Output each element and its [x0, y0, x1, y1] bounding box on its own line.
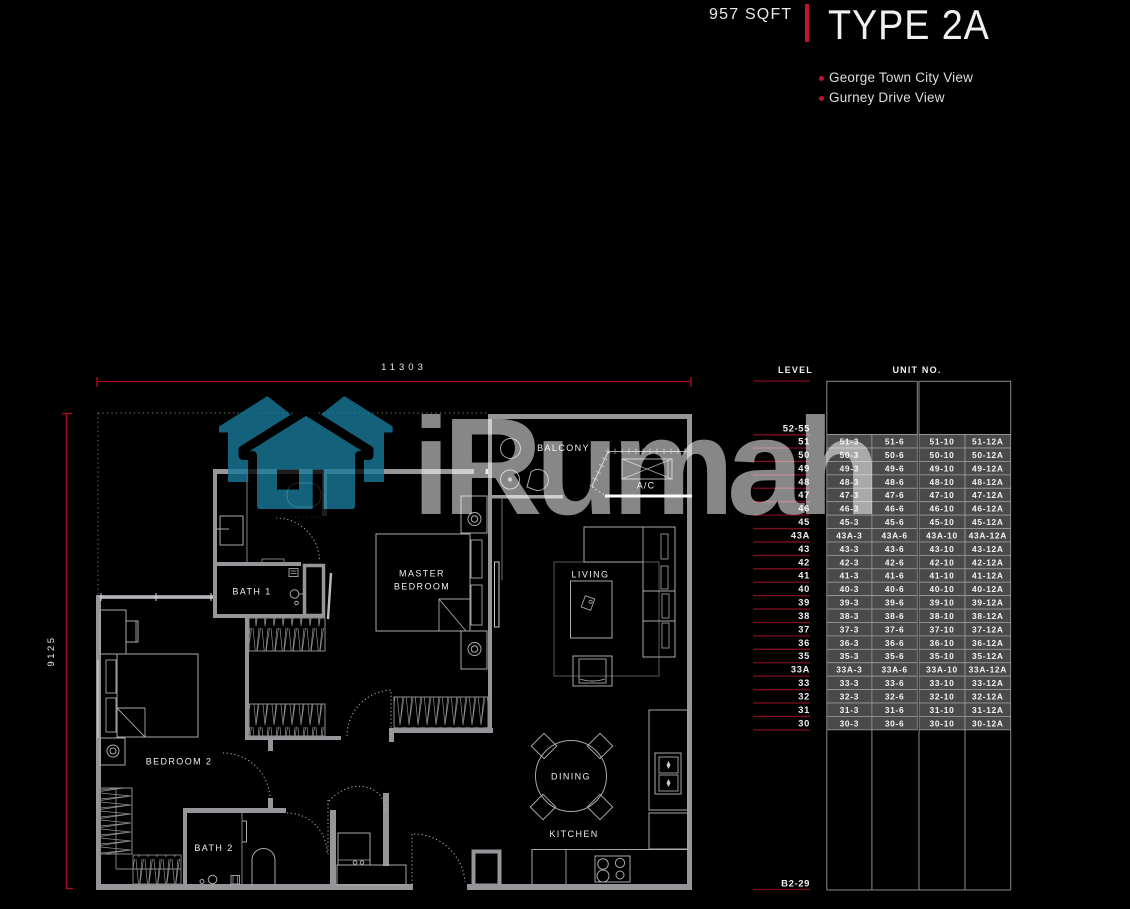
- svg-text:BATH 1: BATH 1: [232, 587, 271, 597]
- svg-text:40-3: 40-3: [840, 584, 860, 594]
- svg-text:iRumah: iRumah: [412, 390, 873, 544]
- svg-text:43A-10: 43A-10: [926, 530, 958, 540]
- svg-text:41: 41: [798, 571, 810, 581]
- svg-text:11303: 11303: [381, 362, 427, 373]
- svg-text:31-6: 31-6: [885, 705, 905, 715]
- svg-text:35: 35: [798, 651, 810, 661]
- svg-text:31-3: 31-3: [840, 705, 860, 715]
- svg-text:42-10: 42-10: [930, 557, 955, 567]
- svg-text:37-12A: 37-12A: [972, 624, 1004, 634]
- svg-text:50-12A: 50-12A: [972, 450, 1004, 460]
- svg-text:UNIT NO.: UNIT NO.: [892, 365, 941, 375]
- svg-text:43-3: 43-3: [840, 544, 860, 554]
- svg-text:43: 43: [798, 544, 810, 554]
- svg-text:50-10: 50-10: [930, 450, 955, 460]
- svg-text:45-6: 45-6: [885, 517, 905, 527]
- svg-text:30: 30: [798, 718, 810, 728]
- svg-text:33-6: 33-6: [885, 678, 905, 688]
- svg-text:43A-12A: 43A-12A: [969, 530, 1007, 540]
- svg-text:30-3: 30-3: [840, 718, 860, 728]
- svg-text:51-6: 51-6: [885, 437, 905, 447]
- svg-text:40: 40: [798, 584, 810, 594]
- svg-text:30-10: 30-10: [930, 718, 955, 728]
- svg-text:36-10: 36-10: [930, 638, 955, 648]
- svg-text:36-6: 36-6: [885, 638, 905, 648]
- svg-text:35-10: 35-10: [930, 651, 955, 661]
- svg-text:40-10: 40-10: [930, 584, 955, 594]
- svg-text:30-12A: 30-12A: [972, 718, 1004, 728]
- svg-text:39-6: 39-6: [885, 598, 905, 608]
- svg-text:49-10: 49-10: [930, 463, 955, 473]
- svg-text:MASTER: MASTER: [399, 569, 445, 579]
- svg-text:B2-29: B2-29: [781, 879, 810, 890]
- svg-text:31-12A: 31-12A: [972, 705, 1004, 715]
- svg-text:33A-12A: 33A-12A: [969, 665, 1007, 675]
- svg-text:38-10: 38-10: [930, 611, 955, 621]
- svg-text:46-6: 46-6: [885, 504, 905, 514]
- svg-text:BATH 2: BATH 2: [194, 843, 233, 853]
- svg-text:39-12A: 39-12A: [972, 598, 1004, 608]
- svg-text:33A-3: 33A-3: [836, 665, 862, 675]
- svg-text:38: 38: [798, 611, 810, 621]
- svg-text:46-12A: 46-12A: [972, 504, 1004, 514]
- svg-text:31: 31: [798, 705, 810, 715]
- svg-text:46-10: 46-10: [930, 504, 955, 514]
- svg-text:48-10: 48-10: [930, 477, 955, 487]
- svg-text:40-12A: 40-12A: [972, 584, 1004, 594]
- svg-text:49-6: 49-6: [885, 463, 905, 473]
- svg-text:43A-6: 43A-6: [881, 530, 907, 540]
- svg-text:KITCHEN: KITCHEN: [549, 829, 598, 839]
- svg-text:48-12A: 48-12A: [972, 477, 1004, 487]
- svg-text:45-12A: 45-12A: [972, 517, 1004, 527]
- svg-text:47-12A: 47-12A: [972, 490, 1004, 500]
- svg-text:41-6: 41-6: [885, 571, 905, 581]
- svg-text:50-6: 50-6: [885, 450, 905, 460]
- svg-text:41-10: 41-10: [930, 571, 955, 581]
- svg-text:38-12A: 38-12A: [972, 611, 1004, 621]
- svg-text:LEVEL: LEVEL: [778, 365, 813, 375]
- svg-text:33-10: 33-10: [930, 678, 955, 688]
- svg-text:33-12A: 33-12A: [972, 678, 1004, 688]
- svg-text:BEDROOM: BEDROOM: [394, 582, 450, 592]
- svg-text:41-3: 41-3: [840, 571, 860, 581]
- svg-text:43-6: 43-6: [885, 544, 905, 554]
- svg-text:51-12A: 51-12A: [972, 437, 1004, 447]
- svg-text:49-12A: 49-12A: [972, 463, 1004, 473]
- svg-text:42-12A: 42-12A: [972, 557, 1004, 567]
- svg-text:9125: 9125: [46, 635, 57, 666]
- svg-text:32-10: 32-10: [930, 691, 955, 701]
- svg-text:32: 32: [798, 691, 810, 701]
- svg-text:33A-10: 33A-10: [926, 665, 958, 675]
- svg-text:41-12A: 41-12A: [972, 571, 1004, 581]
- svg-text:42: 42: [798, 557, 810, 567]
- svg-text:37-6: 37-6: [885, 624, 905, 634]
- svg-text:32-6: 32-6: [885, 691, 905, 701]
- svg-text:51-10: 51-10: [930, 437, 955, 447]
- svg-text:LIVING: LIVING: [572, 570, 610, 580]
- svg-text:BEDROOM 2: BEDROOM 2: [146, 757, 213, 767]
- svg-text:39-3: 39-3: [840, 598, 860, 608]
- svg-text:35-12A: 35-12A: [972, 651, 1004, 661]
- svg-text:48-6: 48-6: [885, 477, 905, 487]
- svg-text:37-10: 37-10: [930, 624, 955, 634]
- svg-text:33: 33: [798, 678, 810, 688]
- svg-text:37-3: 37-3: [840, 624, 860, 634]
- svg-text:35-6: 35-6: [885, 651, 905, 661]
- svg-text:DINING: DINING: [551, 772, 591, 782]
- svg-text:38-6: 38-6: [885, 611, 905, 621]
- svg-text:30-6: 30-6: [885, 718, 905, 728]
- svg-text:33A: 33A: [791, 665, 810, 675]
- svg-text:42-6: 42-6: [885, 557, 905, 567]
- svg-text:47-10: 47-10: [930, 490, 955, 500]
- svg-text:38-3: 38-3: [840, 611, 860, 621]
- svg-text:33-3: 33-3: [840, 678, 860, 688]
- svg-text:47-6: 47-6: [885, 490, 905, 500]
- svg-text:35-3: 35-3: [840, 651, 860, 661]
- svg-text:36-3: 36-3: [840, 638, 860, 648]
- svg-text:32-12A: 32-12A: [972, 691, 1004, 701]
- svg-text:33A-6: 33A-6: [881, 665, 907, 675]
- svg-text:39: 39: [798, 598, 810, 608]
- svg-text:32-3: 32-3: [840, 691, 860, 701]
- svg-text:36: 36: [798, 638, 810, 648]
- svg-text:37: 37: [798, 624, 810, 634]
- svg-text:43-10: 43-10: [930, 544, 955, 554]
- svg-text:40-6: 40-6: [885, 584, 905, 594]
- svg-text:45-10: 45-10: [930, 517, 955, 527]
- svg-text:39-10: 39-10: [930, 598, 955, 608]
- svg-text:42-3: 42-3: [840, 557, 860, 567]
- svg-text:43-12A: 43-12A: [972, 544, 1004, 554]
- svg-text:36-12A: 36-12A: [972, 638, 1004, 648]
- svg-text:31-10: 31-10: [930, 705, 955, 715]
